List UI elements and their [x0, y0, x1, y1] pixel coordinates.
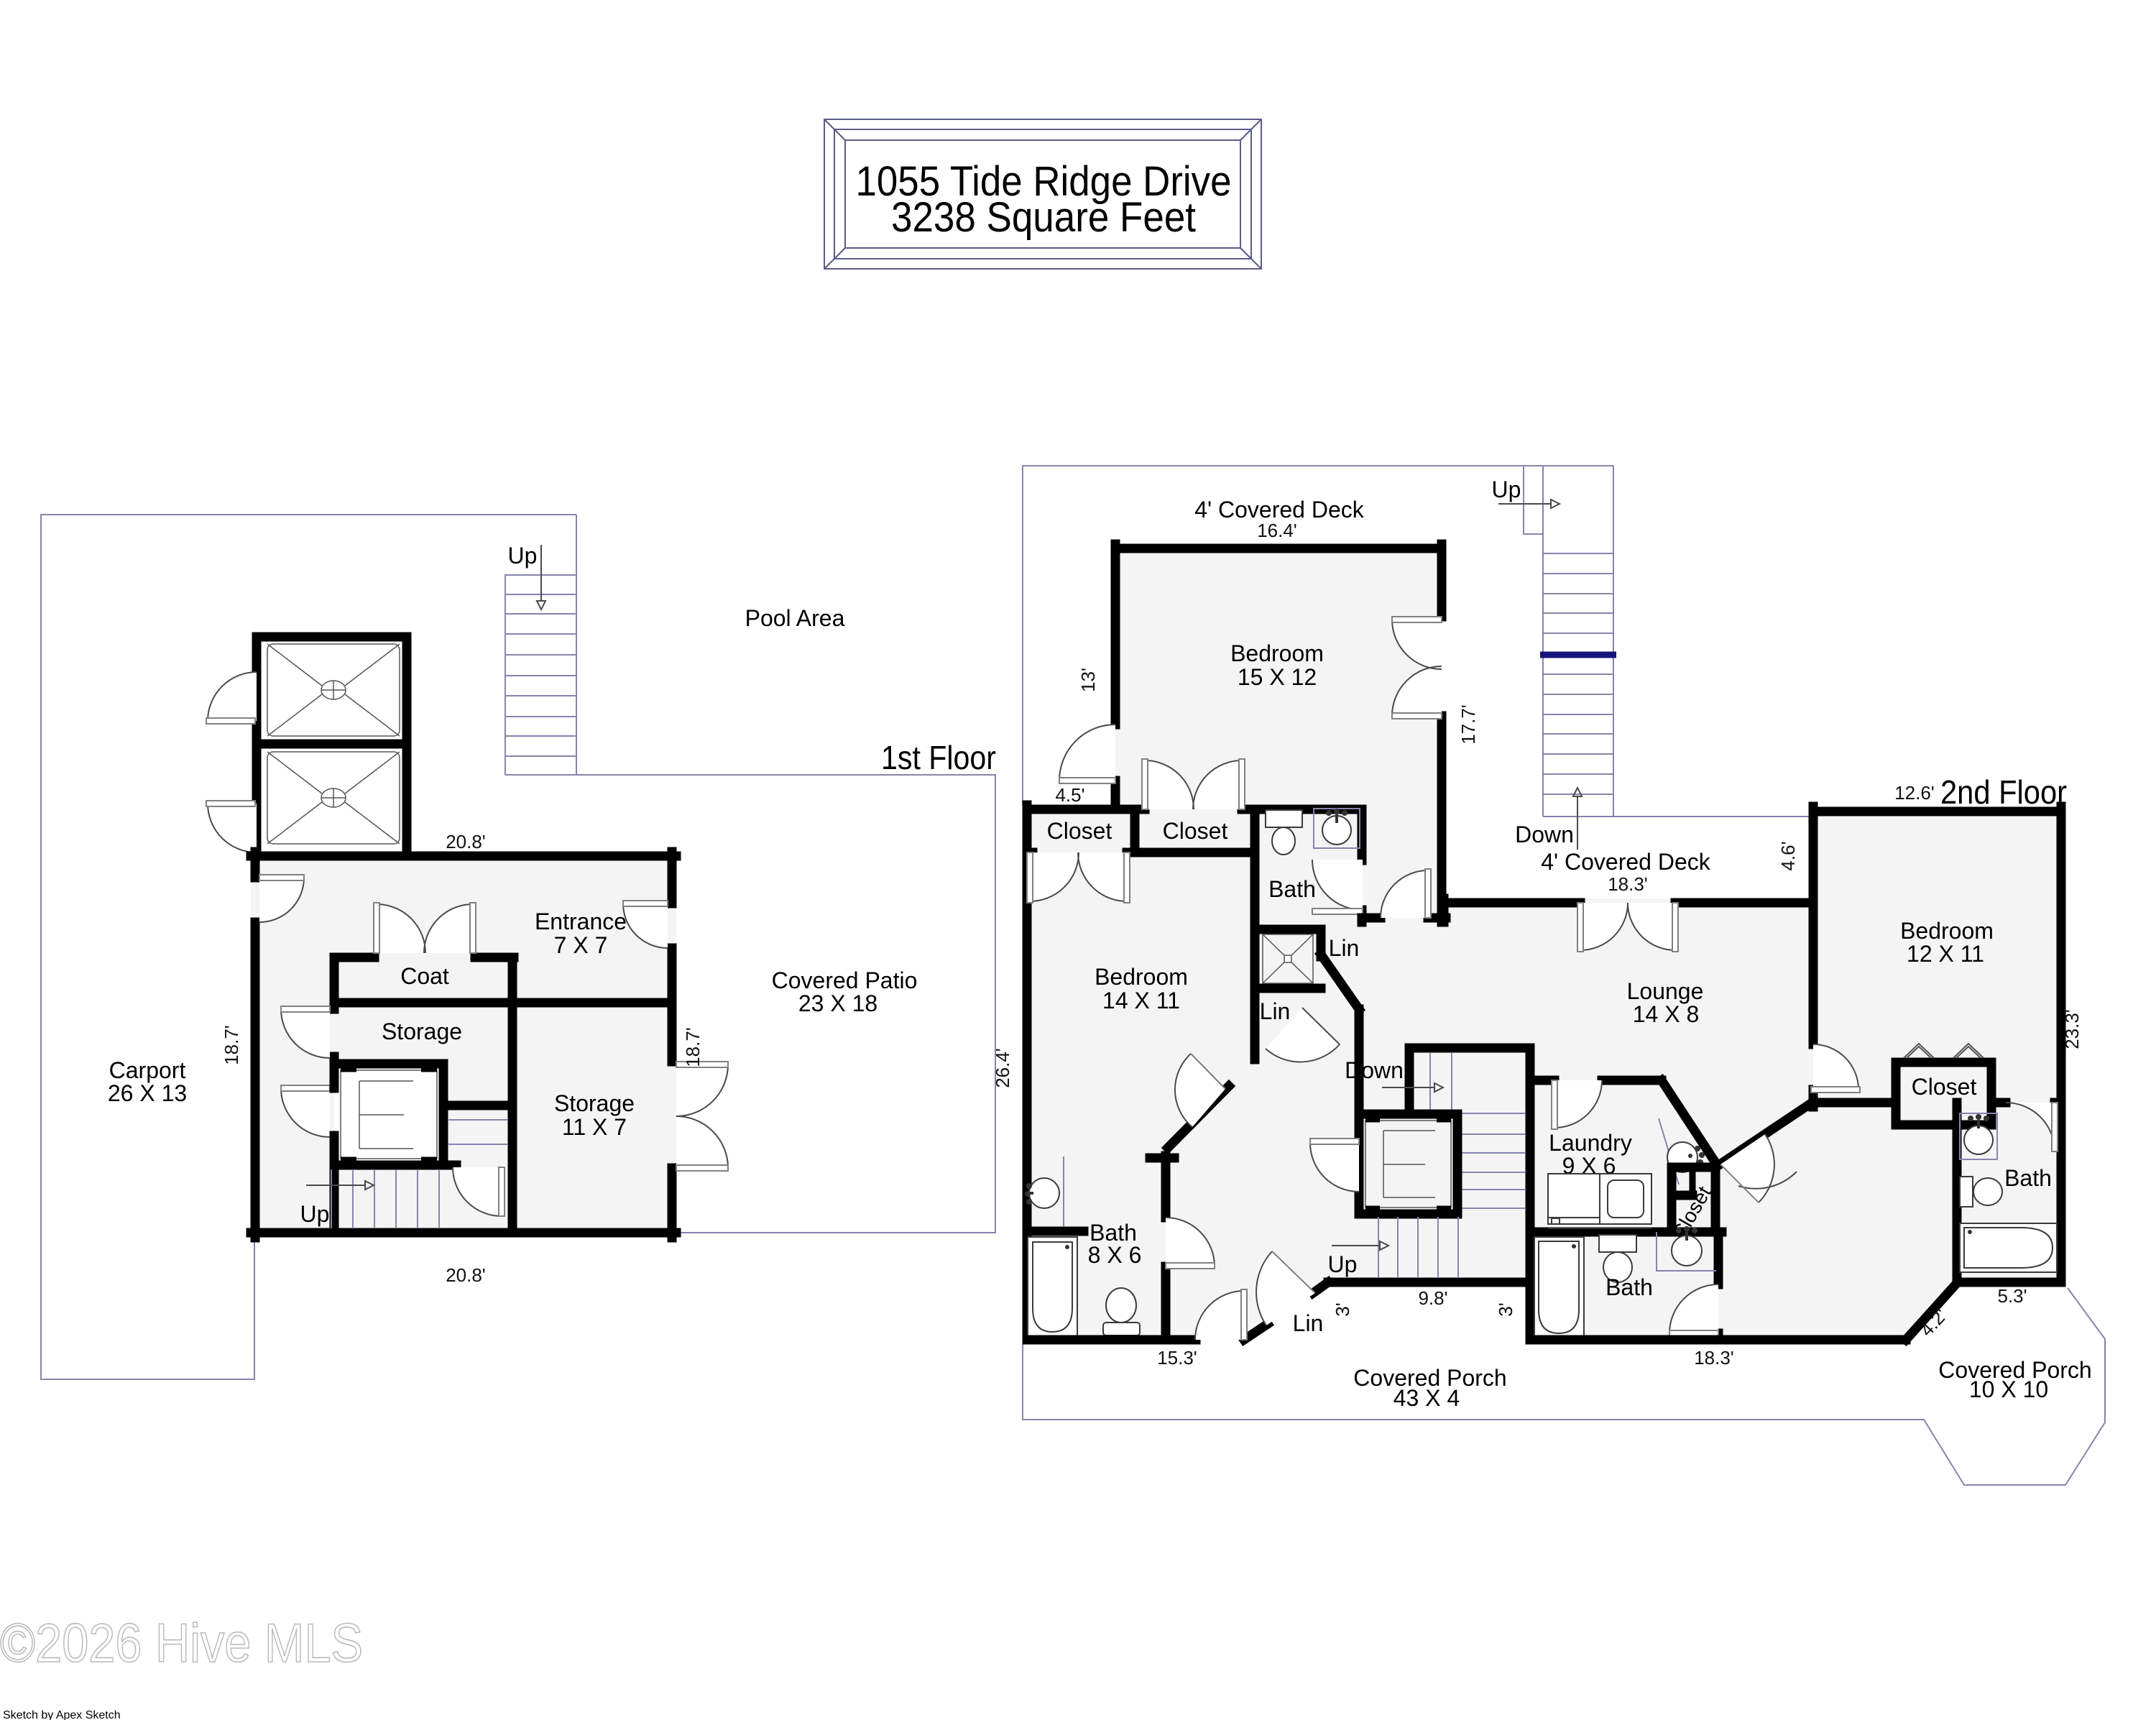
svg-text:Coat: Coat	[400, 963, 449, 989]
svg-text:Closet: Closet	[1163, 818, 1228, 844]
svg-text:Pool Area: Pool Area	[745, 605, 845, 631]
svg-text:Lounge: Lounge	[1627, 978, 1704, 1004]
svg-text:Storage: Storage	[382, 1018, 462, 1044]
svg-text:4' Covered Deck: 4' Covered Deck	[1194, 497, 1365, 523]
svg-text:Carport: Carport	[109, 1057, 186, 1083]
svg-text:18.3': 18.3'	[1694, 1347, 1734, 1369]
svg-text:17.7': 17.7'	[1457, 704, 1479, 745]
svg-text:26.4': 26.4'	[992, 1048, 1013, 1088]
svg-text:Up: Up	[1492, 477, 1521, 502]
svg-text:4.5': 4.5'	[1055, 784, 1084, 806]
svg-text:Lin: Lin	[1329, 935, 1360, 961]
svg-text:8 X 6: 8 X 6	[1088, 1242, 1142, 1268]
svg-text:©2026 Hive MLS: ©2026 Hive MLS	[0, 1613, 363, 1674]
svg-text:20.8': 20.8'	[446, 1264, 486, 1286]
svg-text:3238 Square Feet: 3238 Square Feet	[891, 194, 1196, 241]
svg-text:Bath: Bath	[1268, 876, 1316, 902]
svg-text:18.7': 18.7'	[682, 1027, 704, 1067]
svg-text:18.3': 18.3'	[1608, 873, 1648, 895]
svg-text:23.3': 23.3'	[2061, 1009, 2083, 1049]
svg-text:18.7': 18.7'	[221, 1025, 242, 1065]
svg-text:Covered Patio: Covered Patio	[772, 967, 918, 993]
svg-text:15.3': 15.3'	[1157, 1347, 1197, 1369]
svg-text:43 X 4: 43 X 4	[1393, 1385, 1460, 1411]
svg-text:4' Covered Deck: 4' Covered Deck	[1541, 849, 1711, 875]
svg-text:7 X 7: 7 X 7	[554, 932, 608, 958]
svg-text:9.8': 9.8'	[1418, 1287, 1447, 1309]
svg-text:12.6': 12.6'	[1894, 782, 1935, 804]
svg-text:15 X 12: 15 X 12	[1238, 664, 1317, 690]
svg-text:Sketch by Apex Sketch: Sketch by Apex Sketch	[3, 1709, 121, 1720]
svg-text:26 X 13: 26 X 13	[108, 1080, 187, 1106]
svg-text:3': 3'	[1332, 1302, 1353, 1316]
svg-text:Closet: Closet	[1047, 818, 1112, 844]
svg-text:2nd Floor: 2nd Floor	[1940, 773, 2067, 811]
svg-text:12 X 11: 12 X 11	[1907, 941, 1984, 967]
svg-text:1st Floor: 1st Floor	[881, 739, 996, 776]
svg-text:16.4': 16.4'	[1257, 520, 1297, 541]
svg-text:Bath: Bath	[2004, 1165, 2052, 1191]
svg-text:5.3': 5.3'	[1997, 1285, 2027, 1307]
svg-text:Storage: Storage	[554, 1090, 635, 1116]
svg-text:23 X 18: 23 X 18	[798, 990, 877, 1016]
svg-text:4.6': 4.6'	[1777, 841, 1799, 870]
svg-text:14 X 8: 14 X 8	[1633, 1001, 1700, 1027]
svg-text:Up: Up	[508, 543, 538, 569]
svg-text:11 X 7: 11 X 7	[562, 1114, 627, 1140]
svg-text:Bedroom: Bedroom	[1230, 640, 1324, 666]
svg-text:Bath: Bath	[1606, 1274, 1653, 1300]
svg-text:Up: Up	[1328, 1251, 1358, 1277]
svg-text:Lin: Lin	[1260, 998, 1291, 1024]
svg-text:Lin: Lin	[1293, 1310, 1324, 1336]
svg-text:3': 3'	[1495, 1302, 1516, 1316]
svg-text:Bedroom: Bedroom	[1095, 964, 1188, 990]
svg-text:13': 13'	[1077, 668, 1099, 692]
svg-text:Bedroom: Bedroom	[1900, 918, 1994, 944]
svg-text:Closet: Closet	[1912, 1074, 1977, 1100]
svg-text:Up: Up	[300, 1201, 330, 1227]
svg-text:Entrance: Entrance	[535, 909, 627, 934]
svg-text:Down: Down	[1515, 822, 1574, 847]
svg-text:Down: Down	[1345, 1057, 1404, 1083]
svg-text:14 X 11: 14 X 11	[1102, 988, 1180, 1013]
svg-text:20.8': 20.8'	[446, 831, 486, 852]
svg-text:10 X 10: 10 X 10	[1969, 1376, 2048, 1402]
svg-text:Laundry: Laundry	[1549, 1130, 1632, 1156]
